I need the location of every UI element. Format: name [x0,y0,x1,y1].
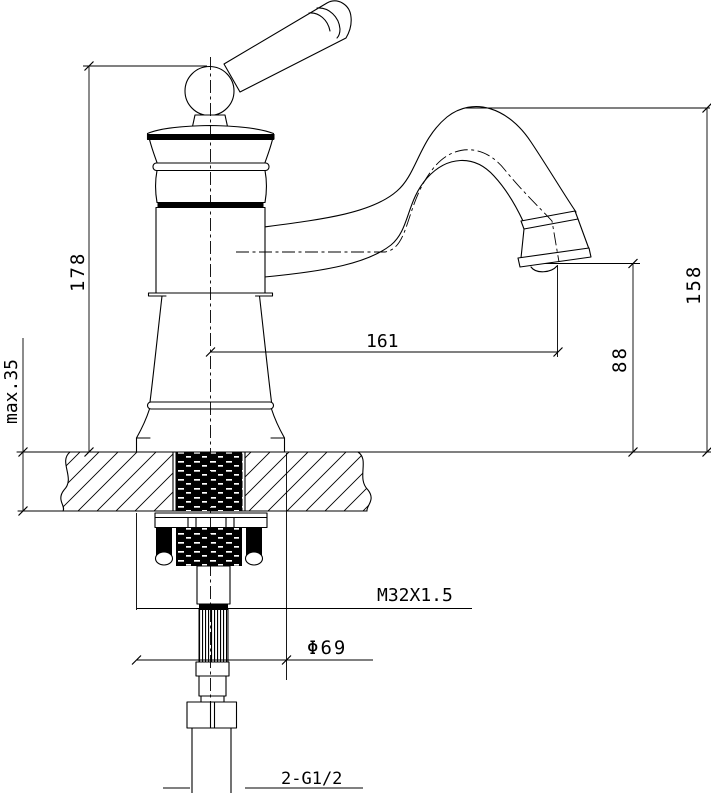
handle-ball [185,67,234,116]
label-inlet-thread: 2-G1/2 [281,769,342,789]
spout [265,107,592,277]
spout-collar [521,211,578,229]
body-bead-upper [153,163,269,171]
faucet-technical-drawing: 178 max.35 161 88 158 M32X1.5 Φ69 2-G1/2 [0,0,711,793]
hose-coupling-upper [196,662,229,676]
ext-line-nozzle [545,264,640,358]
hex-nut [187,702,237,728]
dimension-outlet-height: 88 [609,346,631,373]
spout-tip [531,266,557,272]
hose-ring [201,696,224,702]
label-base-diameter: Φ69 [307,637,347,659]
supply-hose [192,728,231,793]
faucet-body [137,1,592,452]
dimension-spout-top-height: 158 [683,265,705,305]
threaded-shank-lower [176,528,242,567]
dimension-spout-reach: 161 [366,331,399,352]
hose-coupling-lower [199,676,226,696]
spout-nozzle-band [518,248,591,267]
ribbed-hose-section [199,610,228,663]
dimension-max-counter-thickness: max.35 [1,359,22,424]
label-shank-thread: M32X1.5 [377,585,453,606]
threaded-shank-upper [176,453,243,512]
technical-drawing-page: 178 max.35 161 88 158 M32X1.5 Φ69 2-G1/2 [0,0,711,793]
dimension-overall-height: 178 [67,252,89,292]
ball-neck [193,115,228,127]
dimension-lines [19,62,711,789]
countertop-section [17,452,711,511]
locknut [155,513,267,528]
lever-handle [224,1,351,92]
shank-tail [197,566,230,604]
spout-centerline [236,150,559,262]
dimension-labels: 178 max.35 161 88 158 M32X1.5 Φ69 2-G1/2 [1,252,705,789]
